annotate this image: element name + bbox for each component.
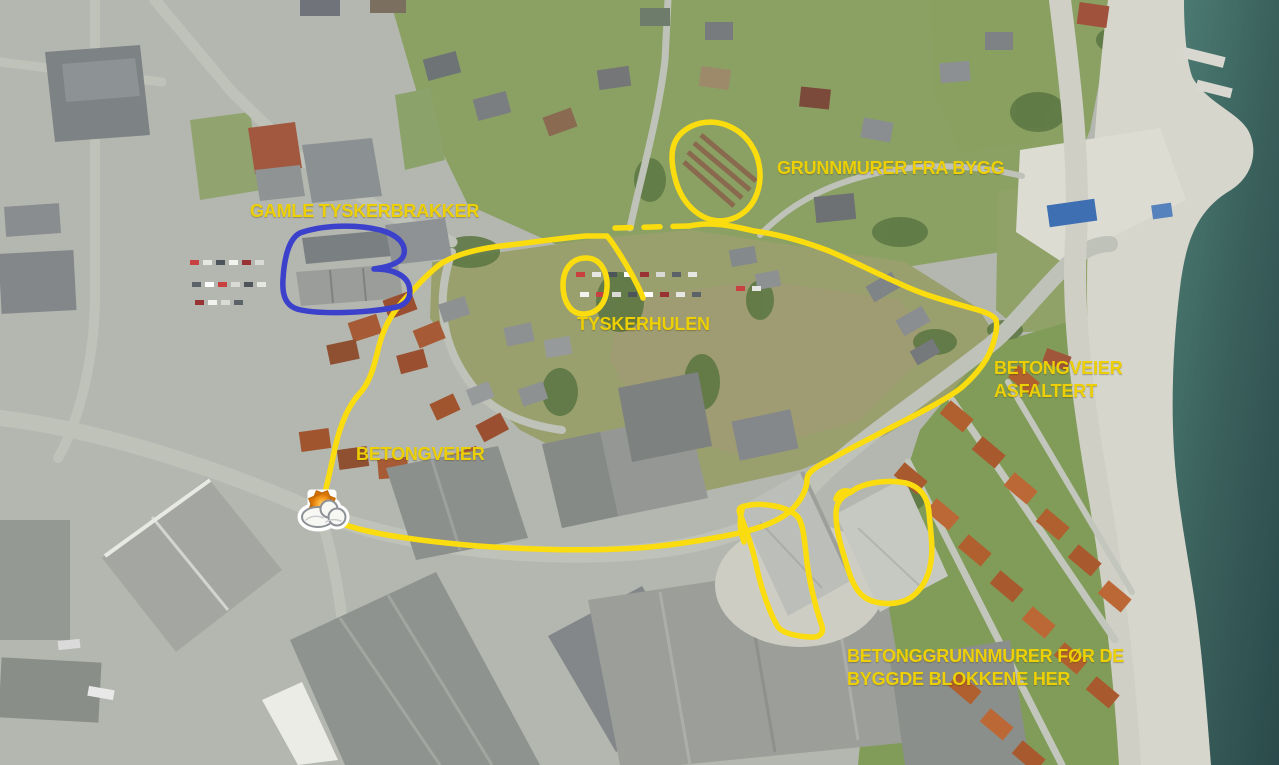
label-betongveier-asfaltert-line2: ASFALTERT [994, 380, 1123, 403]
aerial-map: GRUNNMURER FRA BYGG GAMLE TYSKERBRAKKER … [0, 0, 1279, 765]
label-betonggrunnmurer-line1: BETONGGRUNNMURER FØR DE [847, 645, 1124, 668]
label-betonggrunnmurer-line2: BYGGDE BLOKKENE HER [847, 668, 1124, 691]
label-betongveier: BETONGVEIER [356, 443, 485, 466]
label-betonggrunnmurer: BETONGGRUNNMURER FØR DE BYGGDE BLOKKENE … [847, 645, 1124, 691]
label-grunnmurer-fra-bygg: GRUNNMURER FRA BYGG [777, 157, 1005, 180]
label-betongveier-asfaltert: BETONGVEIER ASFALTERT [994, 357, 1123, 403]
route-line-dashed [615, 226, 689, 228]
label-betongveier-asfaltert-line1: BETONGVEIER [994, 357, 1123, 380]
label-gamle-tyskerbrakker: GAMLE TYSKERBRAKKER [250, 200, 479, 223]
label-tyskerhulen: TYSKERHULEN [577, 313, 710, 336]
